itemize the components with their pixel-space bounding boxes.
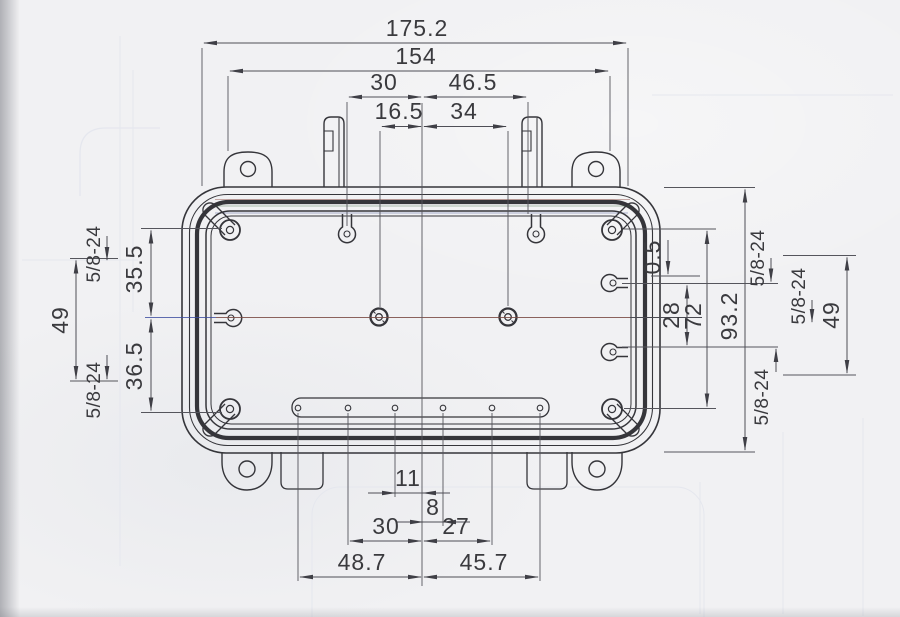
enclosure-outline [182,117,660,490]
latch-clip-left [324,117,344,187]
dim-label: 0.5 [639,240,665,275]
dim-label: 36.5 [121,342,147,391]
dimension-16-5: 16.5 [375,98,424,127]
dimension-45-7: 45.7 [424,549,538,577]
dim-label: 46.5 [449,69,498,95]
mount-ear-bottom-right [572,452,622,490]
dimension-49-left: 49 [47,261,76,380]
thread-label: 5/8-24 [748,230,769,287]
dimension-30-top: 30 [349,69,421,97]
dim-label: 49 [818,301,844,329]
mount-ear-top-left [224,152,272,187]
dim-label: 48.7 [338,549,387,575]
dimension-93-2: 93.2 [716,190,745,451]
thread-label: 5/8-24 [789,268,810,325]
thread-label: 5/8-24 [84,226,105,283]
dimension-48-7: 48.7 [300,549,421,577]
dimension-49-right: 49 [818,258,847,374]
dim-label: 16.5 [375,98,424,124]
bottom-tab-right [527,452,567,489]
wall-boss-left [214,310,242,327]
mount-ear-bottom-left [222,452,272,490]
wall-boss-right-upper [601,274,628,291]
lid-screw-hole-right [500,309,517,326]
dimension-46-5: 46.5 [424,69,526,97]
dim-label: 27 [442,513,470,539]
bottom-strip [292,398,549,417]
thread-callout-right-bottom: 5/8-24 [752,349,776,425]
thread-callout-left-bottom: 5/8-24 [84,355,107,418]
inner-wall [206,211,636,429]
dimension-72: 72 [680,231,707,407]
dim-label: 175.2 [386,15,449,41]
dimension-154: 154 [230,43,608,71]
seal-band [197,202,645,438]
centerlines [145,103,702,586]
dim-label: 30 [370,69,398,95]
dim-label: 49 [47,306,73,334]
scanned-page: 175.2 154 30 46.5 16.5 34 11 8 30 27 [0,0,900,617]
mount-ear-top-right [572,152,620,187]
dim-label: 154 [395,43,436,69]
technical-drawing: 175.2 154 30 46.5 16.5 34 11 8 30 27 [0,0,900,617]
dimension-35-5: 35.5 [121,231,151,316]
thread-label: 5/8-24 [84,362,105,419]
bottom-tab-left [281,452,323,489]
outer-wall [182,187,660,453]
dim-label: 30 [372,513,400,539]
dim-label: 35.5 [121,245,147,294]
dim-label: 11 [395,465,421,491]
dim-label: 34 [450,98,478,124]
thread-label: 5/8-24 [752,369,773,426]
dim-label: 8 [426,494,440,520]
latch-clip-right [522,117,542,187]
thread-callout-right-outer: 5/8-24 [789,268,812,325]
dimension-36-5: 36.5 [121,320,151,411]
dimension-30-bottom: 30 [350,513,421,541]
wall-boss-top-right [528,214,545,243]
dim-label: 93.2 [716,292,742,341]
dim-label: 45.7 [460,549,509,575]
wall-boss-right-lower [601,344,628,361]
thread-callout-right-top: 5/8-24 [748,230,771,287]
dimension-0-5: 0.5 [639,240,668,275]
lid-screw-hole-left [371,309,388,326]
dimension-34: 34 [424,98,506,127]
thread-callout-left-top: 5/8-24 [84,226,107,283]
dim-label: 72 [680,302,706,330]
dimension-175-2: 175.2 [204,15,626,43]
dimension-11: 11 [368,465,450,493]
